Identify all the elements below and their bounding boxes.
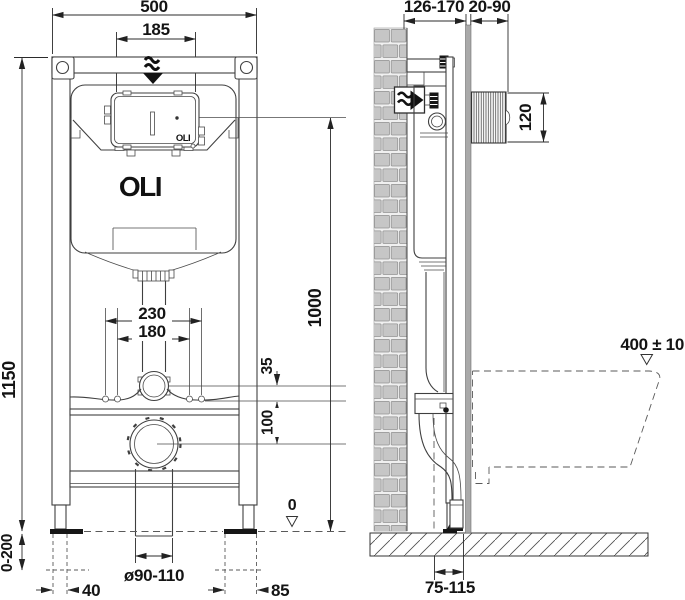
- dim-drain-offset-label: 100: [260, 410, 277, 435]
- panel-slot: [151, 112, 155, 135]
- dim-flush-bend-offset: 35: [259, 357, 277, 385]
- dim-plate-height: 120: [508, 93, 550, 142]
- level-triangle-icon: [287, 517, 298, 527]
- floor-slab: [370, 533, 648, 556]
- panel-logo-text: OLI: [176, 133, 190, 144]
- dim-right-offset: 85: [208, 581, 289, 600]
- dim-opening-width-label: 185: [142, 20, 169, 39]
- dim-fixing-inner-label: 180: [138, 322, 165, 341]
- side-view: [370, 25, 660, 556]
- dim-frame-depth-label: 126-170: [404, 0, 464, 16]
- dim-left-offset: 40: [36, 581, 100, 600]
- dim-frame-depth: 126-170: [404, 0, 466, 29]
- dim-flush-bend-offset-label: 35: [259, 357, 276, 374]
- dim-finish-thickness: 20-90: [469, 0, 511, 92]
- foot-plate-left: [50, 529, 83, 534]
- brand-logo: OLI: [115, 171, 162, 202]
- dim-left-offset-label: 40: [82, 581, 100, 600]
- dim-drain-diameter: ø90-110: [124, 538, 184, 585]
- dim-right-offset-label: 85: [271, 581, 289, 600]
- wall-finish-layer: [466, 25, 472, 533]
- dim-panel-height: 1000: [199, 118, 346, 532]
- dim-drain-diameter-label: ø90-110: [124, 566, 184, 585]
- flush-plate: [472, 92, 510, 143]
- fixing-bolt: [103, 396, 109, 402]
- dim-plate-height-label: 120: [516, 104, 535, 131]
- dim-frame-height: 1150: [0, 58, 48, 532]
- adjustable-leg-right: [243, 505, 254, 529]
- outlet-bend: [415, 394, 463, 533]
- dim-fixing-outer: 230: [106, 304, 202, 323]
- dim-bowl-height: 400 ± 10: [620, 335, 684, 365]
- water-inlet-icon-side: [395, 87, 425, 113]
- panel-pin: [175, 116, 178, 119]
- level-zero-label: 0: [288, 497, 297, 514]
- dim-drain-offset: 100: [260, 402, 283, 444]
- foot-plate-right: [224, 529, 257, 534]
- toilet-bowl-outline: [473, 371, 660, 484]
- dim-finish-thickness-label: 20-90: [469, 0, 511, 16]
- hanger-hole-left: [57, 62, 69, 74]
- installation-frame-drawing: OLI OLI: [0, 0, 685, 600]
- cistern-profile: [414, 86, 446, 392]
- fixing-bolt: [199, 396, 205, 402]
- dimensions: 500 185 1150 0-200: [0, 0, 684, 600]
- dim-leg-adjustment-label: 0-200: [0, 534, 16, 572]
- fixing-bolt: [187, 396, 193, 402]
- dim-overall-width-label: 500: [140, 0, 167, 16]
- technical-drawing: OLI OLI: [0, 0, 685, 600]
- level-triangle-icon: [641, 355, 653, 365]
- dim-bowl-height-label: 400 ± 10: [620, 335, 684, 354]
- flush-bend-connector: [138, 372, 170, 401]
- dim-fixing-inner: 180: [118, 322, 190, 341]
- dim-opening-width: 185: [117, 20, 196, 39]
- front-view: OLI OLI: [50, 32, 257, 536]
- dim-outlet-distance-label: 75-115: [425, 578, 475, 597]
- access-panel: OLI: [105, 91, 205, 149]
- dim-panel-height-label: 1000: [305, 288, 325, 327]
- hanger-hole-right: [241, 62, 253, 74]
- level-marker-zero: 0: [287, 497, 298, 527]
- adjustable-leg-left: [55, 505, 66, 529]
- dim-frame-height-label: 1150: [0, 361, 19, 399]
- dim-fixing-outer-label: 230: [138, 304, 165, 323]
- fixing-bolt: [115, 396, 121, 402]
